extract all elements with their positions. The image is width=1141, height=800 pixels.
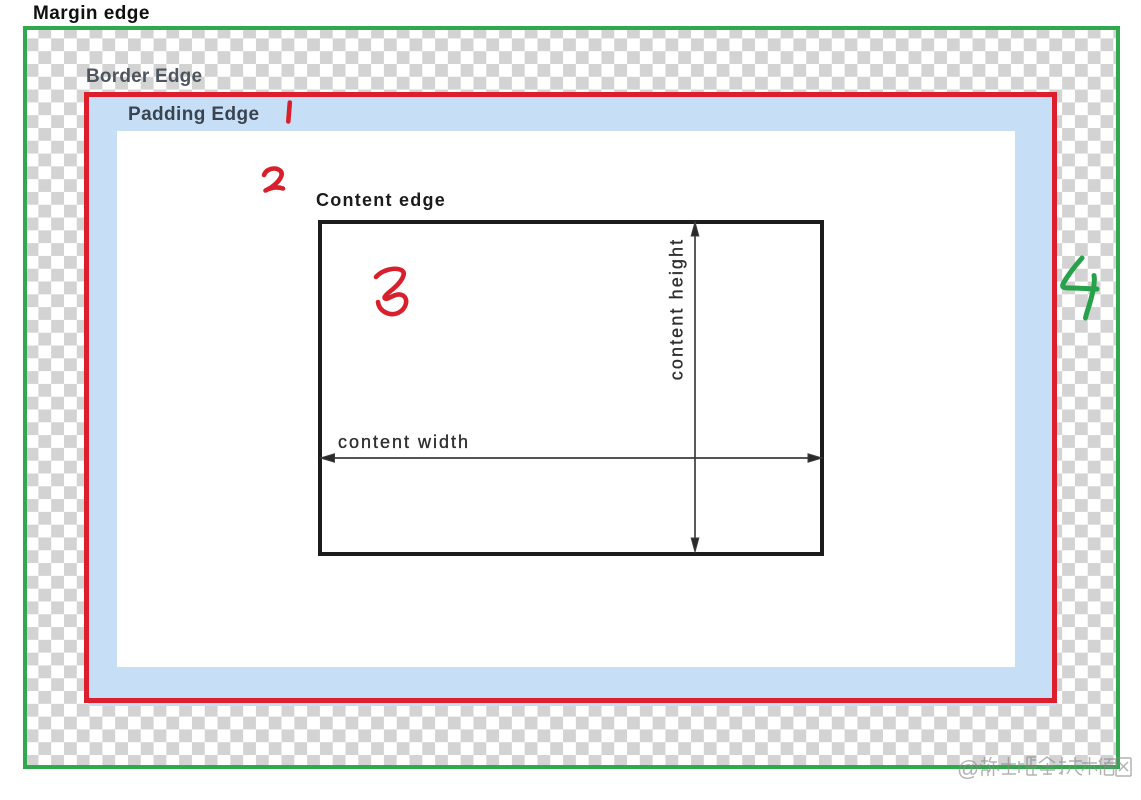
svg-text:@: @ xyxy=(957,756,979,781)
